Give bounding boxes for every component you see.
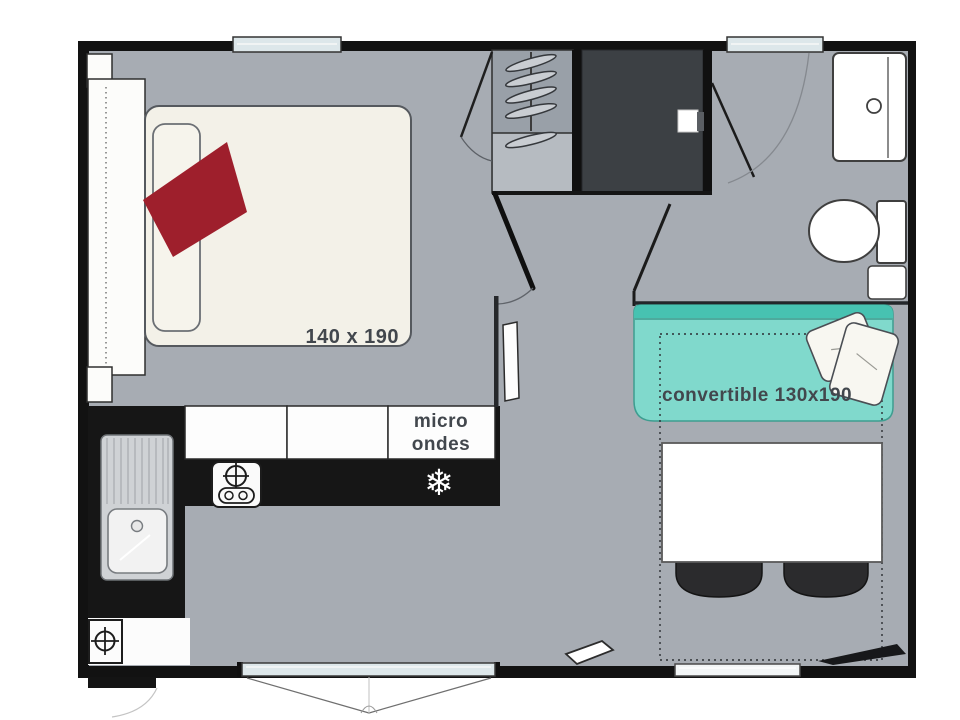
french-door-glass: [242, 663, 495, 676]
freezer-snowflake-icon: ❄: [424, 463, 454, 504]
top-window-left: [233, 37, 341, 52]
french-doors: [237, 662, 500, 713]
washbasin-drain: [867, 99, 881, 113]
hob-unit: [212, 462, 261, 507]
kitchen-cabinet-1: [185, 406, 287, 459]
sofa-size-label: convertible 130x190: [662, 385, 852, 406]
floorplan-page: 140 x 190 micro ondes ❄: [0, 0, 960, 720]
microwave-label-line2: ondes: [412, 434, 470, 455]
dining-chair-1: [676, 557, 762, 597]
divider-wall: [572, 50, 582, 193]
toilet-cabinet: [868, 266, 906, 299]
bed-size-label: 140 x 190: [306, 326, 399, 348]
bedroom-wall-stub: [494, 296, 499, 407]
sliding-door-panel: [503, 322, 519, 401]
door-swing-left: [247, 678, 369, 713]
wardrobe-bottom-box: [87, 367, 112, 402]
toilet-bowl: [809, 200, 879, 262]
gas-compartment: [88, 618, 190, 665]
outside-step: [88, 677, 156, 688]
shower-mixer: [678, 110, 698, 132]
washbasin: [833, 53, 906, 161]
shower-mixer-shadow: [697, 112, 704, 131]
dining-table: [662, 443, 882, 562]
kitchen-cabinet-2: [287, 406, 388, 459]
door-swing-right: [369, 678, 491, 713]
bedroom: 140 x 190: [143, 106, 411, 348]
top-window-right: [727, 37, 823, 52]
compartment-door-arc: [112, 688, 157, 717]
shower-cabin: [582, 50, 712, 193]
block-south-wall: [492, 191, 712, 195]
window-glass: [675, 664, 800, 676]
microwave-label-line1: micro: [414, 411, 468, 432]
toilet-tank: [877, 201, 906, 263]
bottom-window: [675, 664, 800, 676]
left-wardrobe-column: [87, 54, 145, 402]
sink-unit: [101, 435, 173, 580]
sink-basin: [108, 509, 167, 573]
dining-chair-2: [784, 557, 868, 597]
sink-drain: [132, 521, 143, 532]
floorplan-svg: 140 x 190 micro ondes ❄: [0, 0, 960, 720]
wardrobe-body: [88, 79, 145, 375]
shower-right-wall: [703, 50, 712, 193]
